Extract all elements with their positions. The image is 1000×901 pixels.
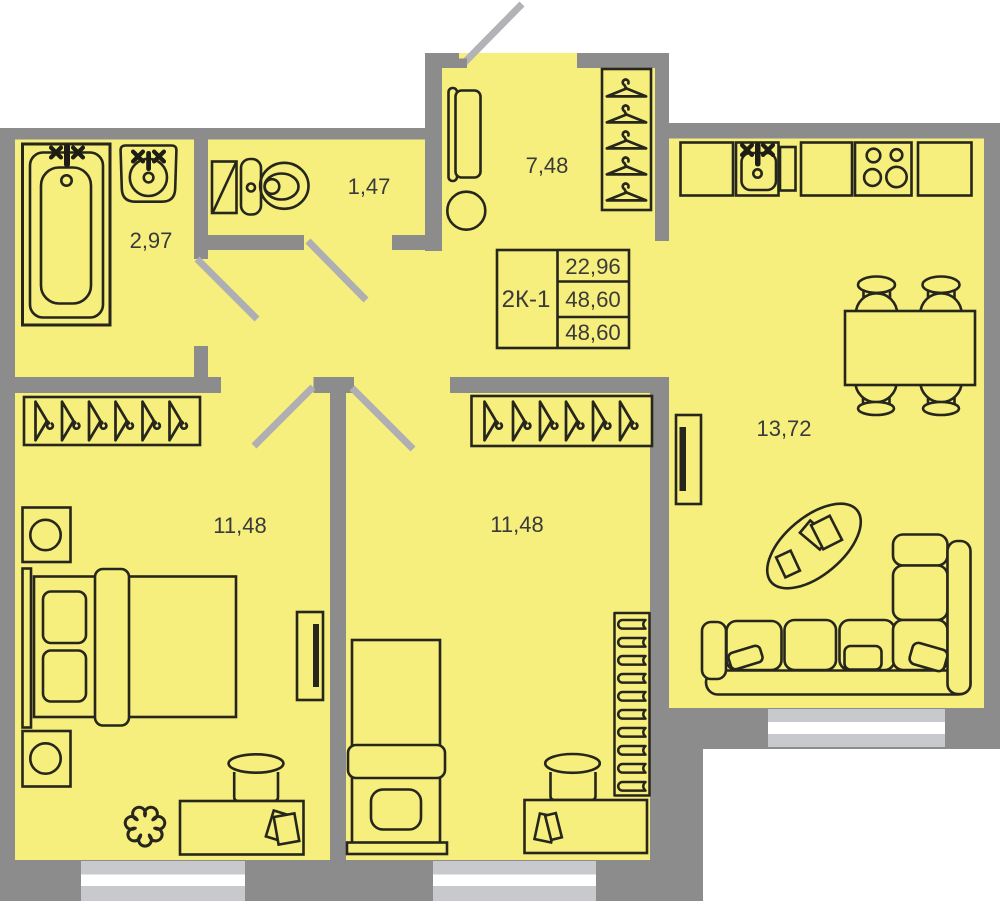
svg-text:11,48: 11,48	[490, 512, 543, 537]
svg-text:48,60: 48,60	[565, 287, 621, 312]
svg-text:11,48: 11,48	[213, 513, 266, 538]
svg-text:13,72: 13,72	[756, 416, 811, 441]
svg-text:22,96: 22,96	[565, 254, 621, 279]
svg-text:1,47: 1,47	[348, 174, 391, 199]
svg-text:2К-1: 2К-1	[502, 286, 551, 313]
svg-text:48,60: 48,60	[565, 320, 621, 345]
svg-text:2,97: 2,97	[130, 228, 173, 253]
svg-text:7,48: 7,48	[526, 153, 569, 178]
